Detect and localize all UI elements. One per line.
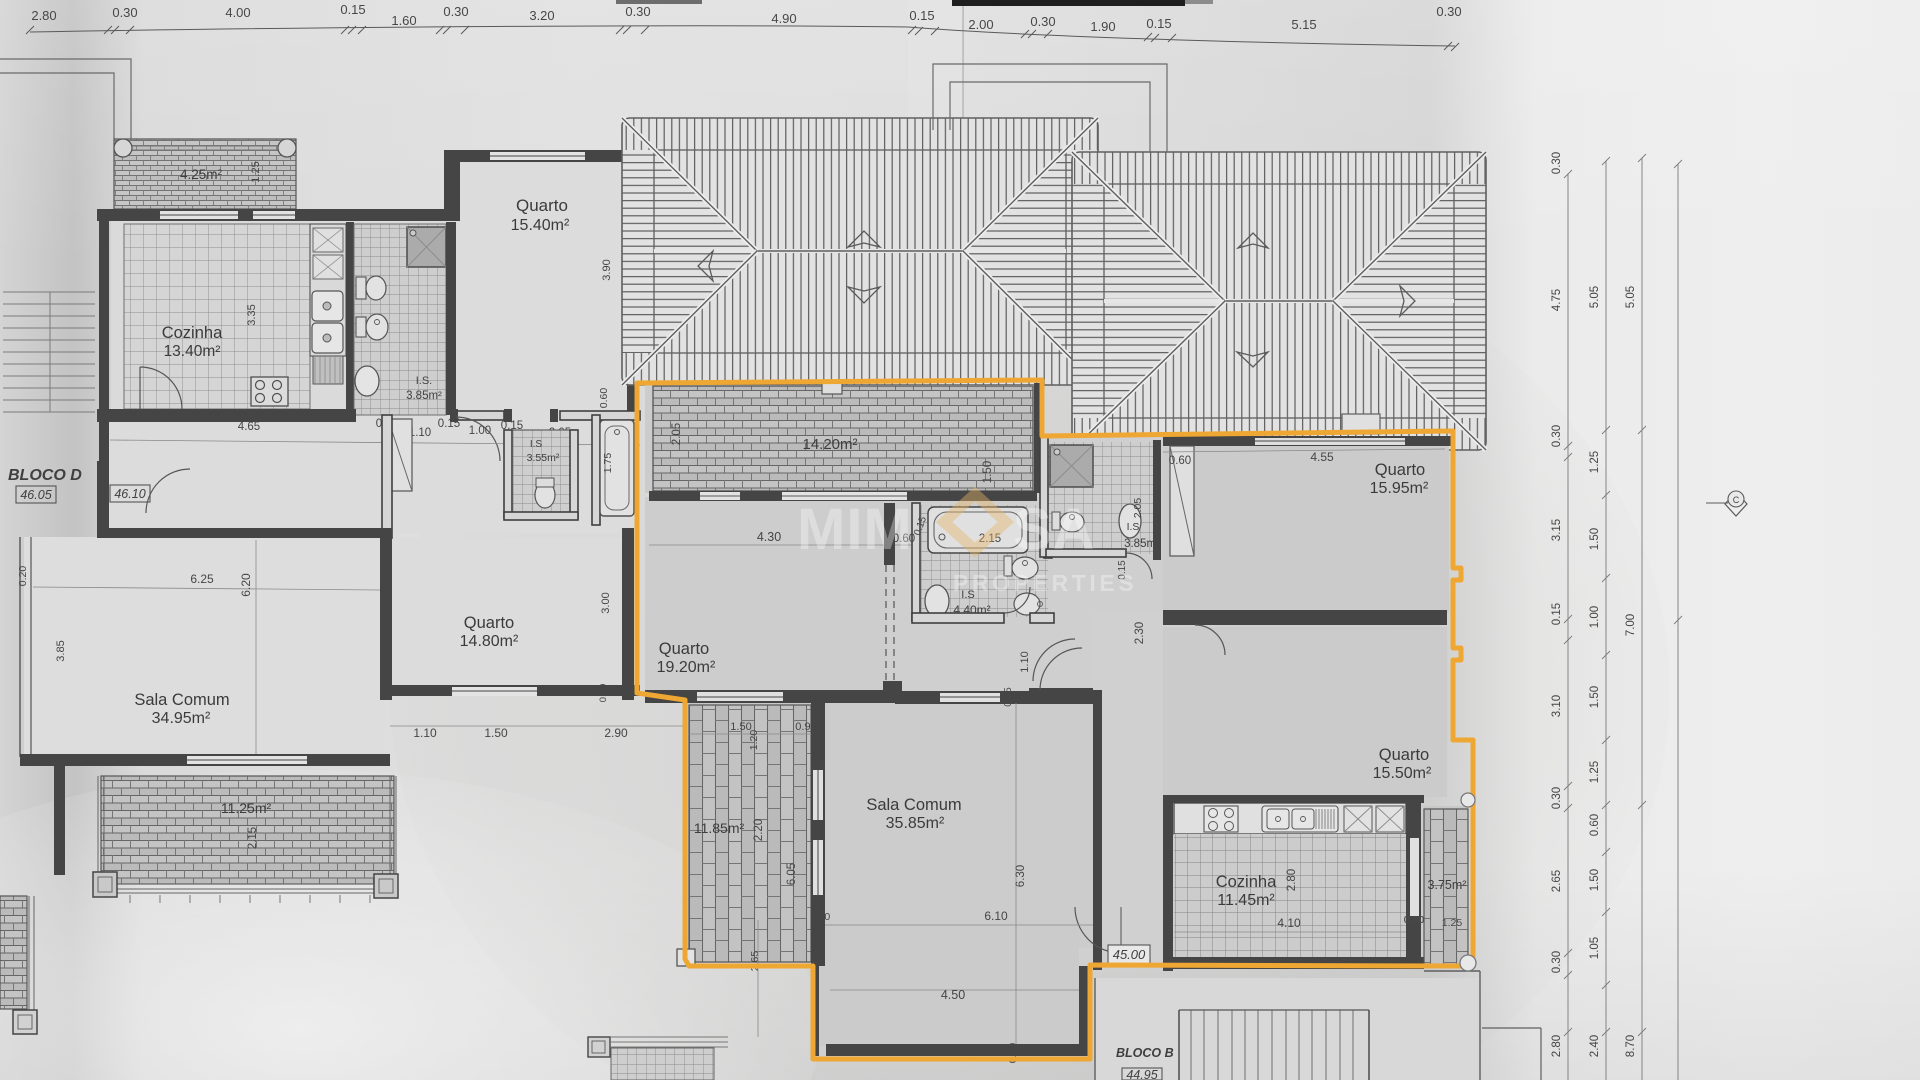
svg-text:3.35: 3.35 bbox=[246, 304, 258, 325]
svg-text:4.10: 4.10 bbox=[1277, 916, 1301, 930]
svg-text:1.10: 1.10 bbox=[413, 726, 437, 740]
svg-text:2.40: 2.40 bbox=[1589, 1035, 1601, 1057]
svg-text:6.20: 6.20 bbox=[239, 573, 253, 597]
svg-text:0.15: 0.15 bbox=[1146, 16, 1171, 31]
svg-text:7.00: 7.00 bbox=[1625, 614, 1637, 636]
svg-text:1.25: 1.25 bbox=[250, 161, 262, 182]
svg-text:2.15: 2.15 bbox=[247, 827, 259, 849]
svg-text:0.15: 0.15 bbox=[438, 418, 460, 430]
svg-text:0.15: 0.15 bbox=[340, 2, 365, 17]
svg-text:3.75m²: 3.75m² bbox=[1428, 878, 1467, 892]
svg-text:13.40m²: 13.40m² bbox=[164, 343, 221, 360]
svg-text:1.60: 1.60 bbox=[391, 13, 416, 28]
svg-text:15.50m²: 15.50m² bbox=[1373, 765, 1432, 782]
svg-text:3.00: 3.00 bbox=[600, 592, 612, 613]
svg-text:5.05: 5.05 bbox=[1589, 286, 1601, 308]
svg-text:3.85: 3.85 bbox=[55, 640, 67, 661]
svg-text:0.30: 0.30 bbox=[1551, 152, 1563, 174]
svg-text:2.05: 2.05 bbox=[671, 423, 683, 445]
svg-text:3.10: 3.10 bbox=[1551, 695, 1563, 717]
svg-text:0.30: 0.30 bbox=[1551, 425, 1563, 447]
svg-text:2.80: 2.80 bbox=[31, 8, 56, 23]
svg-text:1.50: 1.50 bbox=[982, 461, 994, 483]
svg-text:46.05: 46.05 bbox=[20, 488, 51, 502]
svg-text:3.15: 3.15 bbox=[1551, 519, 1563, 541]
svg-text:0.30: 0.30 bbox=[1436, 4, 1461, 19]
svg-text:1.25: 1.25 bbox=[1589, 451, 1601, 473]
svg-text:0.30: 0.30 bbox=[1404, 914, 1425, 926]
svg-text:34.95m²: 34.95m² bbox=[152, 710, 211, 727]
svg-text:15.40m²: 15.40m² bbox=[511, 217, 570, 234]
svg-text:2.30: 2.30 bbox=[1134, 622, 1146, 644]
svg-text:1.25: 1.25 bbox=[1589, 761, 1601, 783]
svg-text:I.S.: I.S. bbox=[416, 375, 433, 387]
svg-text:8.70: 8.70 bbox=[1625, 1035, 1637, 1057]
svg-text:5.05: 5.05 bbox=[1625, 286, 1637, 308]
svg-text:0.30: 0.30 bbox=[598, 684, 609, 703]
svg-text:1.20: 1.20 bbox=[748, 730, 760, 751]
svg-text:4.65: 4.65 bbox=[238, 421, 260, 433]
svg-text:4.00: 4.00 bbox=[225, 5, 250, 20]
svg-text:1.50: 1.50 bbox=[1589, 686, 1601, 708]
svg-text:Quarto: Quarto bbox=[516, 196, 568, 215]
svg-text:1.50: 1.50 bbox=[1589, 869, 1601, 891]
svg-text:1.90: 1.90 bbox=[1090, 19, 1115, 34]
svg-text:0.30: 0.30 bbox=[112, 5, 137, 20]
svg-text:Quarto: Quarto bbox=[1379, 746, 1429, 764]
svg-text:BLOCO B: BLOCO B bbox=[1116, 1046, 1174, 1060]
svg-text:1.10: 1.10 bbox=[1019, 651, 1031, 672]
svg-text:19.20m²: 19.20m² bbox=[657, 659, 716, 676]
svg-text:0.90: 0.90 bbox=[795, 721, 816, 733]
svg-text:MIM: MIM bbox=[797, 497, 913, 562]
svg-text:0.30: 0.30 bbox=[1030, 14, 1055, 29]
svg-text:3.20: 3.20 bbox=[529, 8, 554, 23]
svg-text:1.50: 1.50 bbox=[1589, 528, 1601, 550]
svg-text:6.25: 6.25 bbox=[190, 572, 214, 586]
svg-text:Quarto: Quarto bbox=[464, 614, 514, 632]
svg-text:46.10: 46.10 bbox=[114, 487, 145, 501]
svg-text:Cozinha: Cozinha bbox=[162, 324, 223, 342]
svg-text:45.00: 45.00 bbox=[1113, 947, 1146, 962]
svg-text:0.60: 0.60 bbox=[1169, 455, 1191, 467]
svg-text:0.60: 0.60 bbox=[1589, 814, 1601, 836]
svg-text:0.30: 0.30 bbox=[1551, 787, 1563, 809]
svg-text:6.30: 6.30 bbox=[1015, 865, 1027, 887]
svg-text:14.80m²: 14.80m² bbox=[460, 633, 519, 650]
svg-text:0.30: 0.30 bbox=[443, 4, 468, 19]
svg-text:5.15: 5.15 bbox=[1291, 17, 1316, 32]
svg-text:0.15: 0.15 bbox=[1551, 603, 1563, 625]
svg-text:44.95: 44.95 bbox=[1126, 1068, 1157, 1080]
svg-text:4.25m²: 4.25m² bbox=[180, 167, 223, 182]
svg-text:4.50: 4.50 bbox=[941, 988, 965, 1002]
svg-text:4.90: 4.90 bbox=[771, 11, 796, 26]
svg-text:0.30: 0.30 bbox=[625, 4, 650, 19]
svg-text:2.90: 2.90 bbox=[604, 726, 628, 740]
svg-text:PROPERTIES: PROPERTIES bbox=[953, 570, 1137, 596]
svg-text:Quarto: Quarto bbox=[1375, 461, 1425, 479]
svg-text:3.90: 3.90 bbox=[601, 259, 613, 280]
svg-text:2.65: 2.65 bbox=[1551, 870, 1563, 892]
svg-text:Sala Comum: Sala Comum bbox=[134, 691, 229, 709]
svg-text:11.25m²: 11.25m² bbox=[221, 800, 272, 816]
svg-text:Cozinha: Cozinha bbox=[1216, 873, 1277, 891]
svg-text:6.05: 6.05 bbox=[786, 863, 798, 885]
svg-text:I.S: I.S bbox=[530, 439, 543, 450]
svg-text:0.20: 0.20 bbox=[17, 566, 29, 587]
svg-text:1.00: 1.00 bbox=[469, 425, 491, 437]
svg-text:11.45m²: 11.45m² bbox=[1217, 892, 1275, 909]
svg-text:C: C bbox=[1733, 495, 1740, 505]
svg-text:14.20m²: 14.20m² bbox=[802, 436, 857, 453]
svg-text:SA: SA bbox=[1013, 497, 1096, 562]
svg-text:BLOCO D: BLOCO D bbox=[8, 467, 82, 484]
svg-text:Quarto: Quarto bbox=[659, 640, 709, 658]
svg-text:15.95m²: 15.95m² bbox=[1370, 480, 1429, 497]
svg-text:2.20: 2.20 bbox=[753, 819, 765, 841]
svg-text:Sala Comum: Sala Comum bbox=[866, 796, 961, 814]
svg-text:0.30: 0.30 bbox=[1551, 951, 1563, 973]
svg-text:11.85m²: 11.85m² bbox=[694, 820, 745, 836]
svg-text:1.50: 1.50 bbox=[484, 726, 508, 740]
svg-text:2.80: 2.80 bbox=[1551, 1035, 1563, 1057]
svg-text:2.05: 2.05 bbox=[1132, 498, 1144, 519]
svg-text:6.10: 6.10 bbox=[984, 909, 1008, 923]
svg-text:1.75: 1.75 bbox=[602, 453, 614, 474]
svg-text:3.55m²: 3.55m² bbox=[527, 452, 560, 464]
svg-text:35.85m²: 35.85m² bbox=[886, 815, 945, 832]
svg-text:1.25: 1.25 bbox=[1442, 917, 1463, 929]
svg-text:4.75: 4.75 bbox=[1551, 289, 1563, 311]
svg-text:4.30: 4.30 bbox=[757, 530, 781, 544]
svg-text:2.00: 2.00 bbox=[968, 17, 993, 32]
svg-text:4.55: 4.55 bbox=[1310, 450, 1334, 464]
svg-text:0.15: 0.15 bbox=[909, 8, 934, 23]
svg-text:2.80: 2.80 bbox=[1286, 869, 1298, 891]
svg-text:0.60: 0.60 bbox=[598, 388, 610, 409]
svg-text:3.85m²: 3.85m² bbox=[406, 390, 442, 402]
svg-text:I.S: I.S bbox=[1127, 521, 1140, 533]
svg-text:1.05: 1.05 bbox=[1589, 937, 1601, 959]
svg-text:1.00: 1.00 bbox=[1589, 606, 1601, 628]
